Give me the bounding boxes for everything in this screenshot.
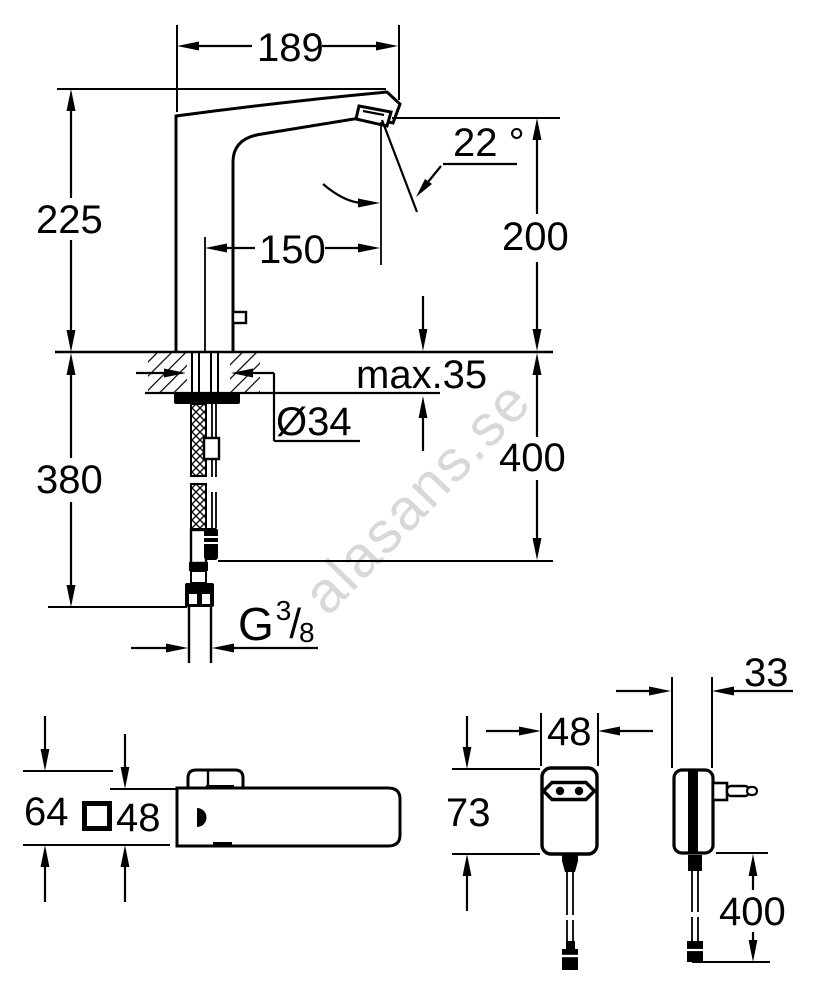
faucet-side-view [176,92,400,352]
cable-connector [562,949,578,970]
faucet-top-view [23,716,400,902]
sensor-tab [233,312,246,323]
drawing-page: alasans.se [0,0,834,1000]
plug-base [713,783,727,800]
thread-denominator: 8 [299,619,315,647]
dim-psu-width-label: 48 [547,712,592,752]
dim-outlet-height-label: 200 [502,217,569,257]
cable-exit [688,855,702,871]
thread-letter: G [238,601,274,647]
supply-hose-and-cable [174,392,240,663]
dim-spout-reach-label: 150 [259,230,326,270]
plug-pin [727,786,749,796]
dim-square-body-label: 48 [116,798,161,838]
cable-connector [204,438,219,459]
braided-hose [191,484,206,529]
dim-psu-cable-length-label: 400 [719,892,786,932]
flange [174,392,240,404]
faucet-body-top [177,788,400,846]
dim-hole-diameter-label: Ø34 [276,402,352,442]
dim-thread-label: G 3 / 8 [238,601,315,647]
dim-spout-width-label: 189 [257,28,324,68]
cable-connector [687,941,703,962]
technical-drawing [0,0,834,1000]
dim-overall-height-label: 64 [24,792,69,832]
square-section-icon [82,801,112,831]
dim-cable-below-deck-label: 400 [499,438,566,478]
dim-spray-angle-label: 22 ° [453,123,525,163]
dim-height-above-deck-label: 225 [36,200,103,240]
dim-hose-below-deck-label: 380 [36,460,103,500]
dim-psu-depth-label: 33 [744,653,789,693]
cable-exit [562,855,578,872]
dim-deck-thickness-label: max.35 [356,355,487,395]
dim-psu-height-label: 73 [446,793,491,833]
